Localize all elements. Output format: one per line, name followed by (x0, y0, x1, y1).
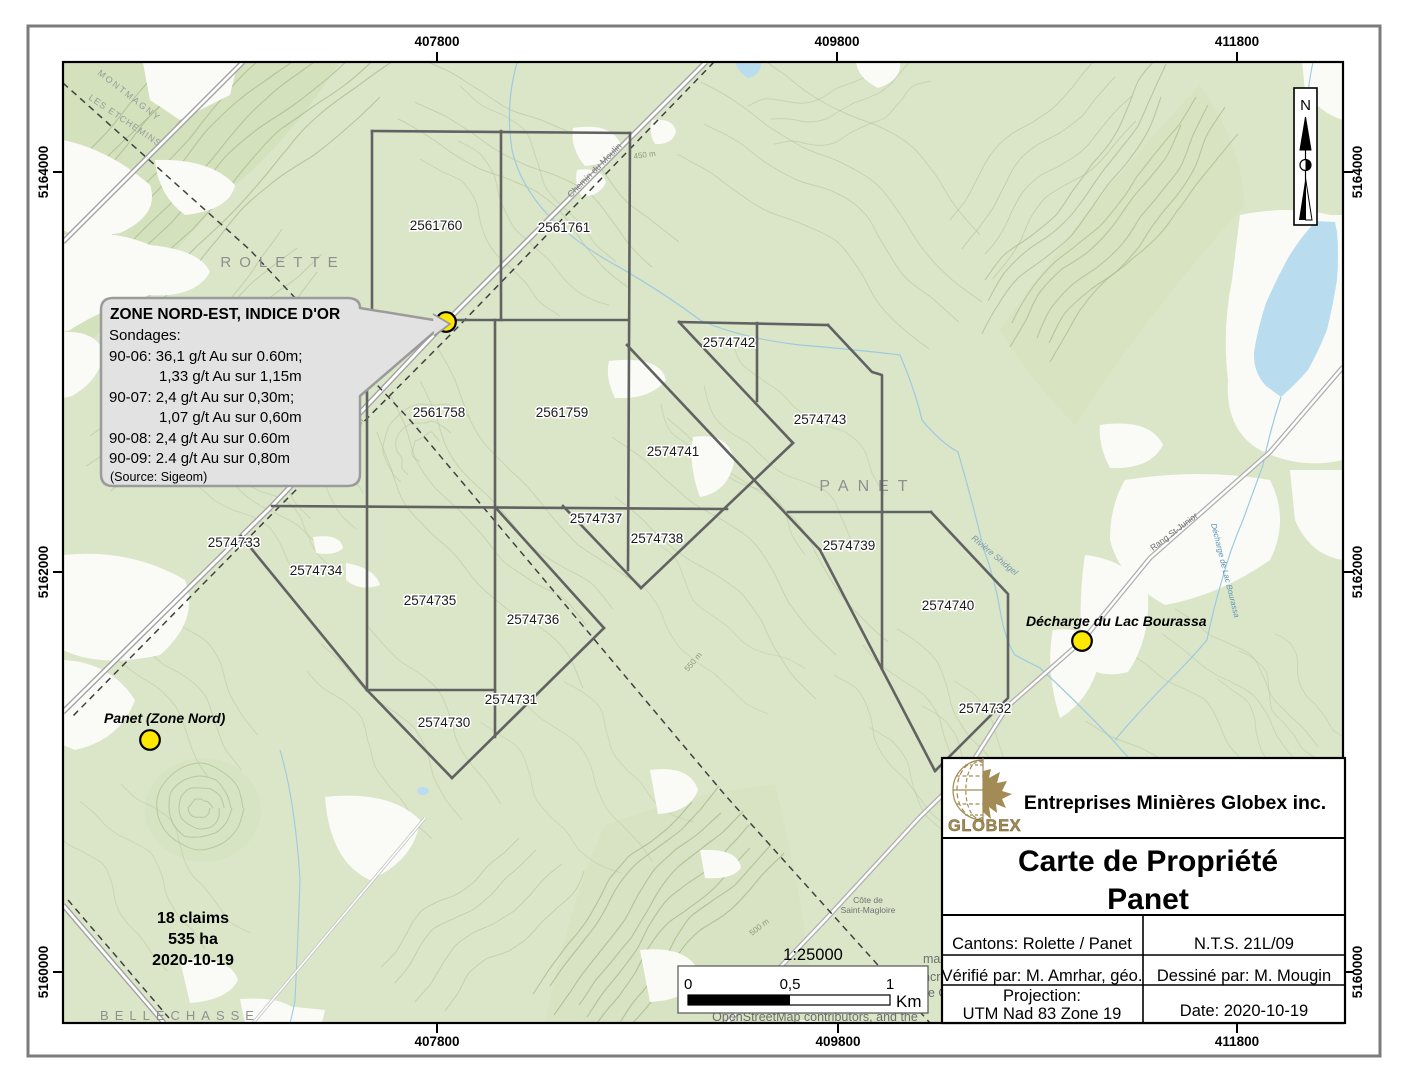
svg-text:Cantons: Rolette / Panet: Cantons: Rolette / Panet (952, 935, 1132, 953)
svg-text:Km: Km (896, 992, 922, 1011)
svg-text:2020-10-19: 2020-10-19 (152, 952, 234, 969)
svg-text:2574742: 2574742 (703, 335, 756, 350)
svg-text:Date: 2020-10-19: Date: 2020-10-19 (1180, 1002, 1308, 1020)
svg-text:18 claims: 18 claims (157, 910, 229, 927)
svg-text:GLOBEX: GLOBEX (948, 817, 1021, 835)
svg-text:(Source: Sigeom): (Source: Sigeom) (110, 470, 207, 484)
svg-text:409800: 409800 (814, 34, 859, 49)
svg-text:407800: 407800 (414, 1034, 459, 1049)
svg-text:411800: 411800 (1215, 1034, 1259, 1049)
svg-text:BELLECHASSE: BELLECHASSE (100, 1008, 260, 1023)
svg-text:2574740: 2574740 (922, 598, 975, 613)
svg-text:5164000: 5164000 (36, 146, 51, 199)
svg-text:2574733: 2574733 (208, 535, 261, 550)
svg-text:2574734: 2574734 (290, 563, 343, 578)
svg-text:2574741: 2574741 (647, 444, 700, 459)
svg-text:Projection:: Projection: (1003, 987, 1081, 1005)
svg-text:2574738: 2574738 (631, 531, 684, 546)
svg-text:UTM Nad 83 Zone 19: UTM Nad 83 Zone 19 (963, 1005, 1122, 1023)
svg-text:0: 0 (684, 976, 692, 993)
svg-text:407800: 407800 (414, 34, 459, 49)
svg-text:PANET: PANET (819, 478, 916, 495)
svg-text:5160000: 5160000 (36, 946, 51, 999)
svg-text:5160000: 5160000 (1350, 946, 1365, 999)
svg-text:2561761: 2561761 (538, 220, 591, 235)
svg-text:Saint-Magloire: Saint-Magloire (841, 905, 896, 915)
svg-text:2574732: 2574732 (959, 701, 1012, 716)
svg-text:411800: 411800 (1215, 34, 1259, 49)
svg-text:1:25000: 1:25000 (783, 946, 843, 964)
svg-text:90-09: 2.4 g/t Au sur 0,80m: 90-09: 2.4 g/t Au sur 0,80m (109, 450, 290, 467)
svg-text:5164000: 5164000 (1350, 146, 1365, 199)
svg-text:2574730: 2574730 (418, 715, 471, 730)
svg-text:ROLETTE: ROLETTE (220, 254, 345, 271)
svg-text:ZONE NORD-EST, INDICE D'OR: ZONE NORD-EST, INDICE D'OR (110, 306, 340, 323)
svg-text:1,07 g/t Au sur 0,60m: 1,07 g/t Au sur 0,60m (159, 409, 302, 426)
svg-text:Panet: Panet (1107, 883, 1189, 916)
svg-text:2574743: 2574743 (794, 412, 847, 427)
svg-text:Dessiné par: M. Mougin: Dessiné par: M. Mougin (1157, 967, 1331, 985)
svg-text:90-07: 2,4 g/t Au sur 0,30m;: 90-07: 2,4 g/t Au sur 0,30m; (109, 389, 294, 406)
svg-text:2561758: 2561758 (413, 405, 466, 420)
svg-text:Vérifié par: M. Amrhar, géo.: Vérifié par: M. Amrhar, géo. (942, 967, 1143, 985)
svg-text:2574735: 2574735 (404, 593, 457, 608)
svg-text:2574736: 2574736 (507, 612, 560, 627)
svg-text:409800: 409800 (815, 1034, 860, 1049)
svg-text:N.T.S. 21L/09: N.T.S. 21L/09 (1194, 935, 1294, 953)
svg-text:2561760: 2561760 (410, 218, 463, 233)
svg-text:2561759: 2561759 (536, 405, 589, 420)
svg-text:N: N (1300, 97, 1311, 114)
svg-text:Décharge du Lac Bourassa: Décharge du Lac Bourassa (1026, 613, 1207, 629)
svg-text:Entreprises Minières Globex in: Entreprises Minières Globex inc. (1024, 792, 1326, 814)
svg-text:1: 1 (886, 976, 894, 993)
svg-text:0,5: 0,5 (780, 976, 801, 993)
svg-text:1,33 g/t Au sur 1,15m: 1,33 g/t Au sur 1,15m (159, 368, 302, 385)
svg-text:Carte de Propriété: Carte de Propriété (1018, 845, 1278, 878)
svg-text:90-06: 36,1 g/t Au sur 0.60m;: 90-06: 36,1 g/t Au sur 0.60m; (109, 348, 302, 365)
svg-text:2574737: 2574737 (570, 511, 623, 526)
svg-text:Panet (Zone Nord): Panet (Zone Nord) (104, 710, 226, 726)
svg-text:90-08: 2,4 g/t Au sur 0.60m: 90-08: 2,4 g/t Au sur 0.60m (109, 430, 290, 447)
svg-text:5162000: 5162000 (1350, 546, 1365, 599)
svg-text:Côte de: Côte de (853, 895, 883, 905)
svg-text:535 ha: 535 ha (168, 931, 218, 948)
svg-text:Sondages:: Sondages: (109, 327, 181, 344)
svg-text:2574731: 2574731 (485, 692, 538, 707)
svg-text:5162000: 5162000 (36, 546, 51, 599)
svg-text:2574739: 2574739 (823, 538, 876, 553)
